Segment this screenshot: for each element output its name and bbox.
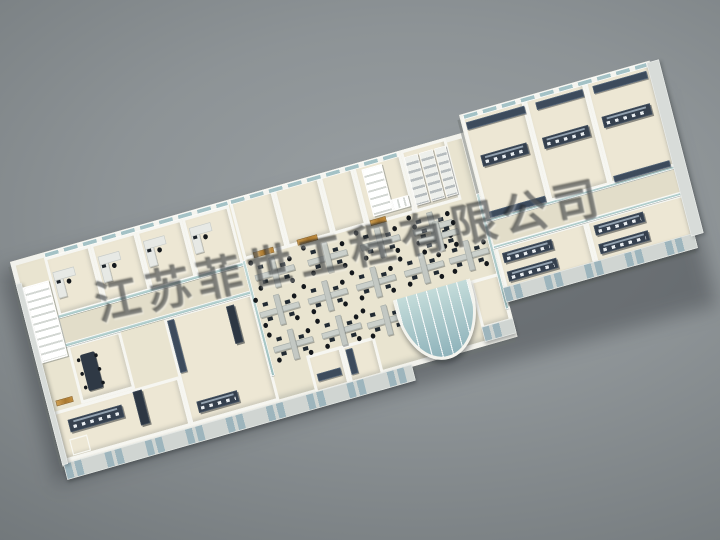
office-chair	[66, 278, 72, 284]
office-chair	[315, 318, 321, 324]
monitor-icon	[310, 288, 316, 293]
monitor-icon	[101, 262, 106, 269]
monitor-icon	[370, 312, 376, 317]
monitor-icon	[146, 246, 151, 253]
office-chair	[406, 215, 412, 221]
office-chair	[253, 297, 259, 303]
office-chair	[360, 308, 366, 314]
office-chair	[203, 234, 209, 240]
monitor-icon	[359, 274, 365, 279]
office-chair	[301, 245, 307, 251]
monitor-icon	[363, 234, 369, 239]
monitor-icon	[421, 228, 427, 233]
office-chair	[248, 260, 254, 266]
monitor-icon	[276, 336, 282, 341]
floor-plan	[10, 78, 707, 467]
office-chair	[301, 283, 307, 289]
monitor-icon	[258, 264, 264, 269]
office-chair	[266, 332, 272, 338]
office-chair	[397, 256, 403, 262]
render-canvas: 江苏菲世工程有限公司	[0, 0, 720, 540]
monitor-icon	[56, 277, 61, 284]
monitor-icon	[407, 260, 413, 265]
monitor-icon	[324, 323, 330, 328]
office-chair	[157, 247, 163, 253]
office-chair	[412, 224, 418, 230]
office-chair	[111, 262, 117, 268]
monitor-icon	[262, 302, 268, 307]
office-chair	[353, 230, 359, 236]
monitor-icon	[192, 233, 197, 240]
monitor-icon	[310, 249, 316, 254]
office-chair	[349, 270, 355, 276]
